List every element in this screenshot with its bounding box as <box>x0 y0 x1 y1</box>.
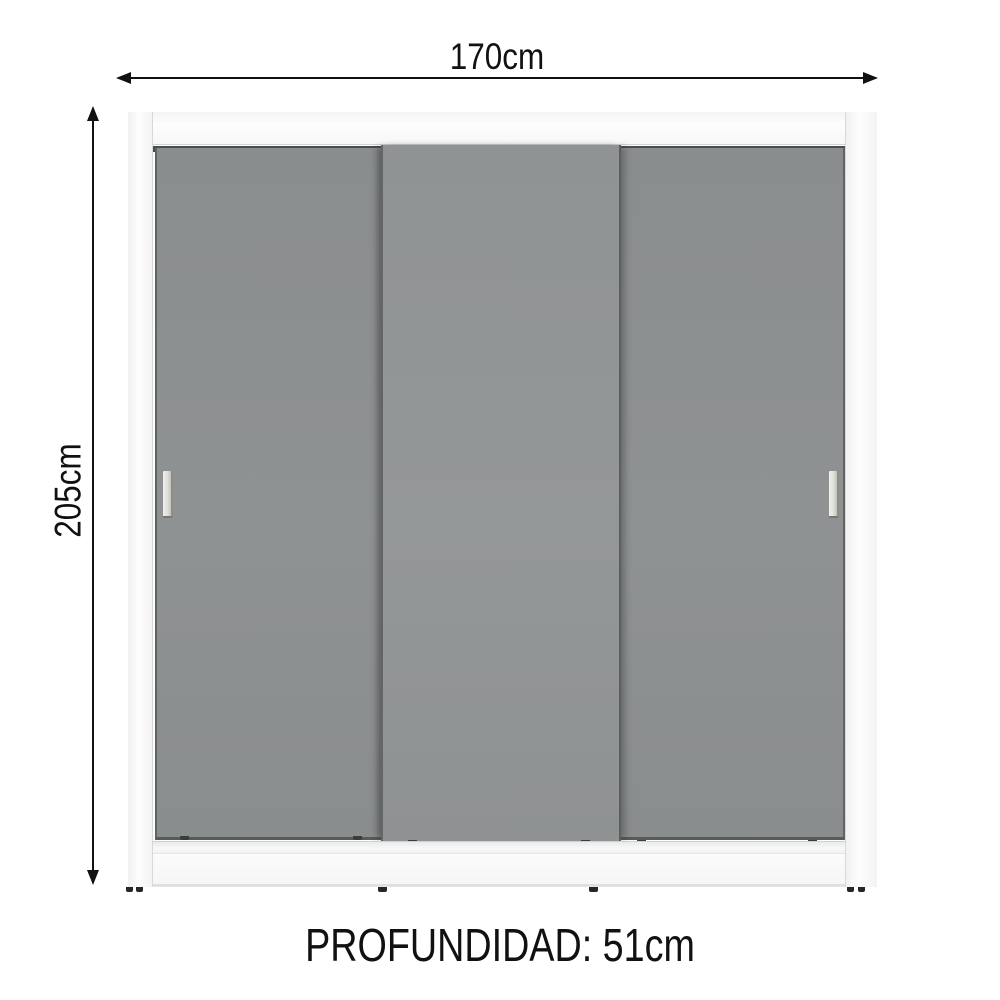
base-plinth <box>153 853 845 886</box>
foot <box>858 887 865 892</box>
door-roller <box>180 836 189 840</box>
height-dimension-label: 205cm <box>50 406 87 576</box>
arrowhead-right-icon <box>863 72 878 84</box>
sliding-door-center <box>381 145 621 841</box>
door-handle-left <box>163 471 173 518</box>
arrowhead-down-icon <box>87 870 99 885</box>
foot <box>126 887 133 892</box>
depth-dimension-label: PROFUNDIDAD: 51cm <box>90 922 910 968</box>
door-handle-right <box>829 471 839 518</box>
width-dimension-line <box>118 77 876 79</box>
height-dimension-line <box>92 108 94 883</box>
foot <box>847 887 854 892</box>
bottom-rail <box>153 841 845 853</box>
foot <box>136 887 143 892</box>
sliding-door-right <box>617 148 845 840</box>
top-panel <box>128 112 877 145</box>
left-side-panel <box>128 112 153 887</box>
dimension-diagram: 170cm 205cm <box>0 0 1000 1000</box>
sliding-door-left <box>155 148 383 840</box>
foot <box>589 887 598 892</box>
width-dimension-label: 170cm <box>412 38 582 75</box>
right-side-panel <box>845 112 877 887</box>
arrowhead-left-icon <box>116 72 131 84</box>
door-roller <box>353 836 362 840</box>
foot <box>378 887 387 892</box>
arrowhead-up-icon <box>87 106 99 121</box>
